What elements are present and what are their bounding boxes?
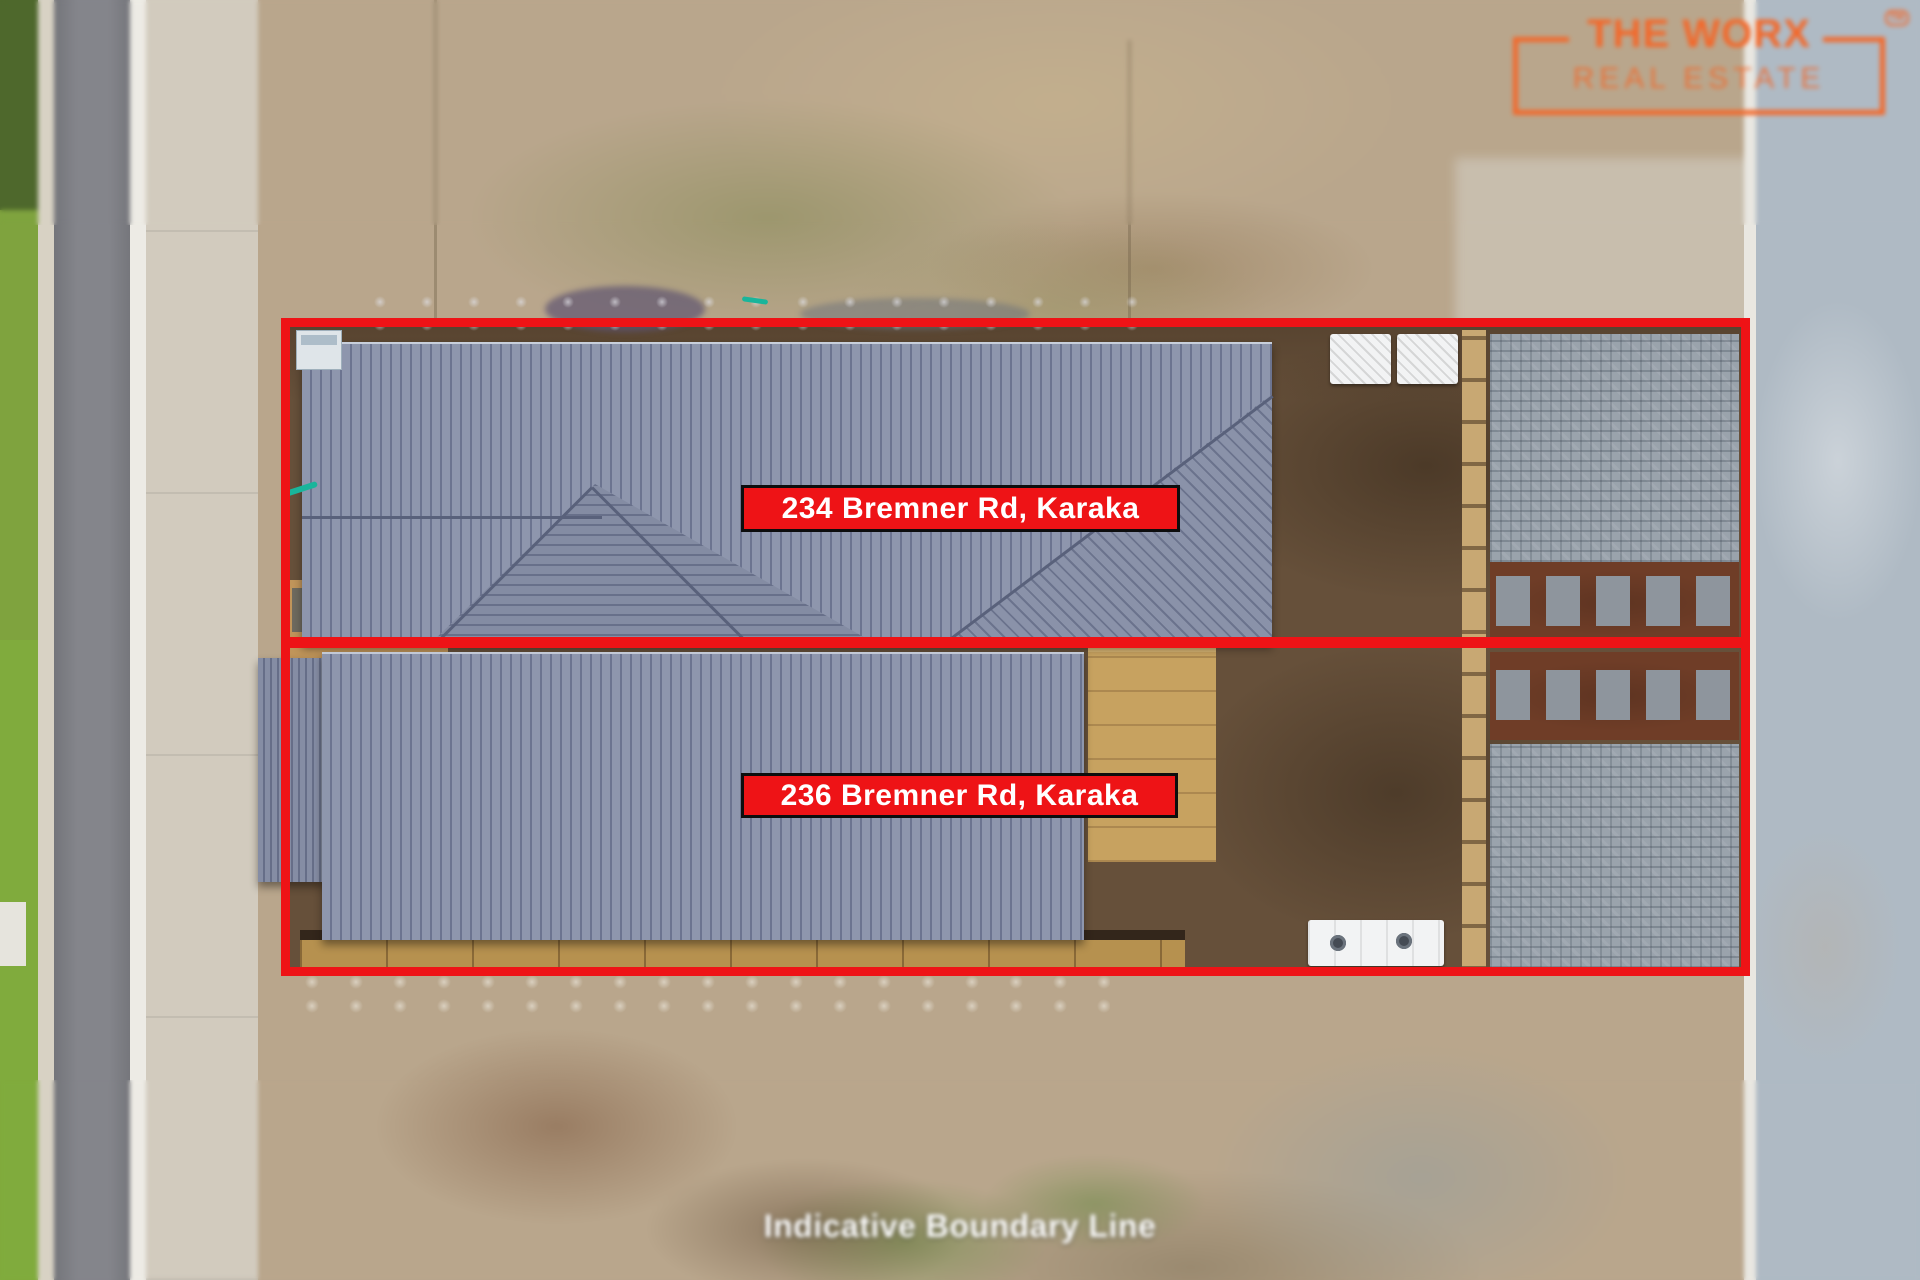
boundary-divider-line (281, 637, 1750, 648)
blur-overlay-top (0, 0, 1920, 225)
concrete-pad (0, 902, 26, 966)
aerial-photo: 234 Bremner Rd, Karaka 236 Bremner Rd, K… (0, 0, 1920, 1280)
scattered-stones (300, 972, 1110, 1016)
property-label-236: 236 Bremner Rd, Karaka (741, 773, 1178, 818)
property-label-234: 234 Bremner Rd, Karaka (741, 485, 1180, 532)
blur-overlay-bottom (0, 1080, 1920, 1280)
